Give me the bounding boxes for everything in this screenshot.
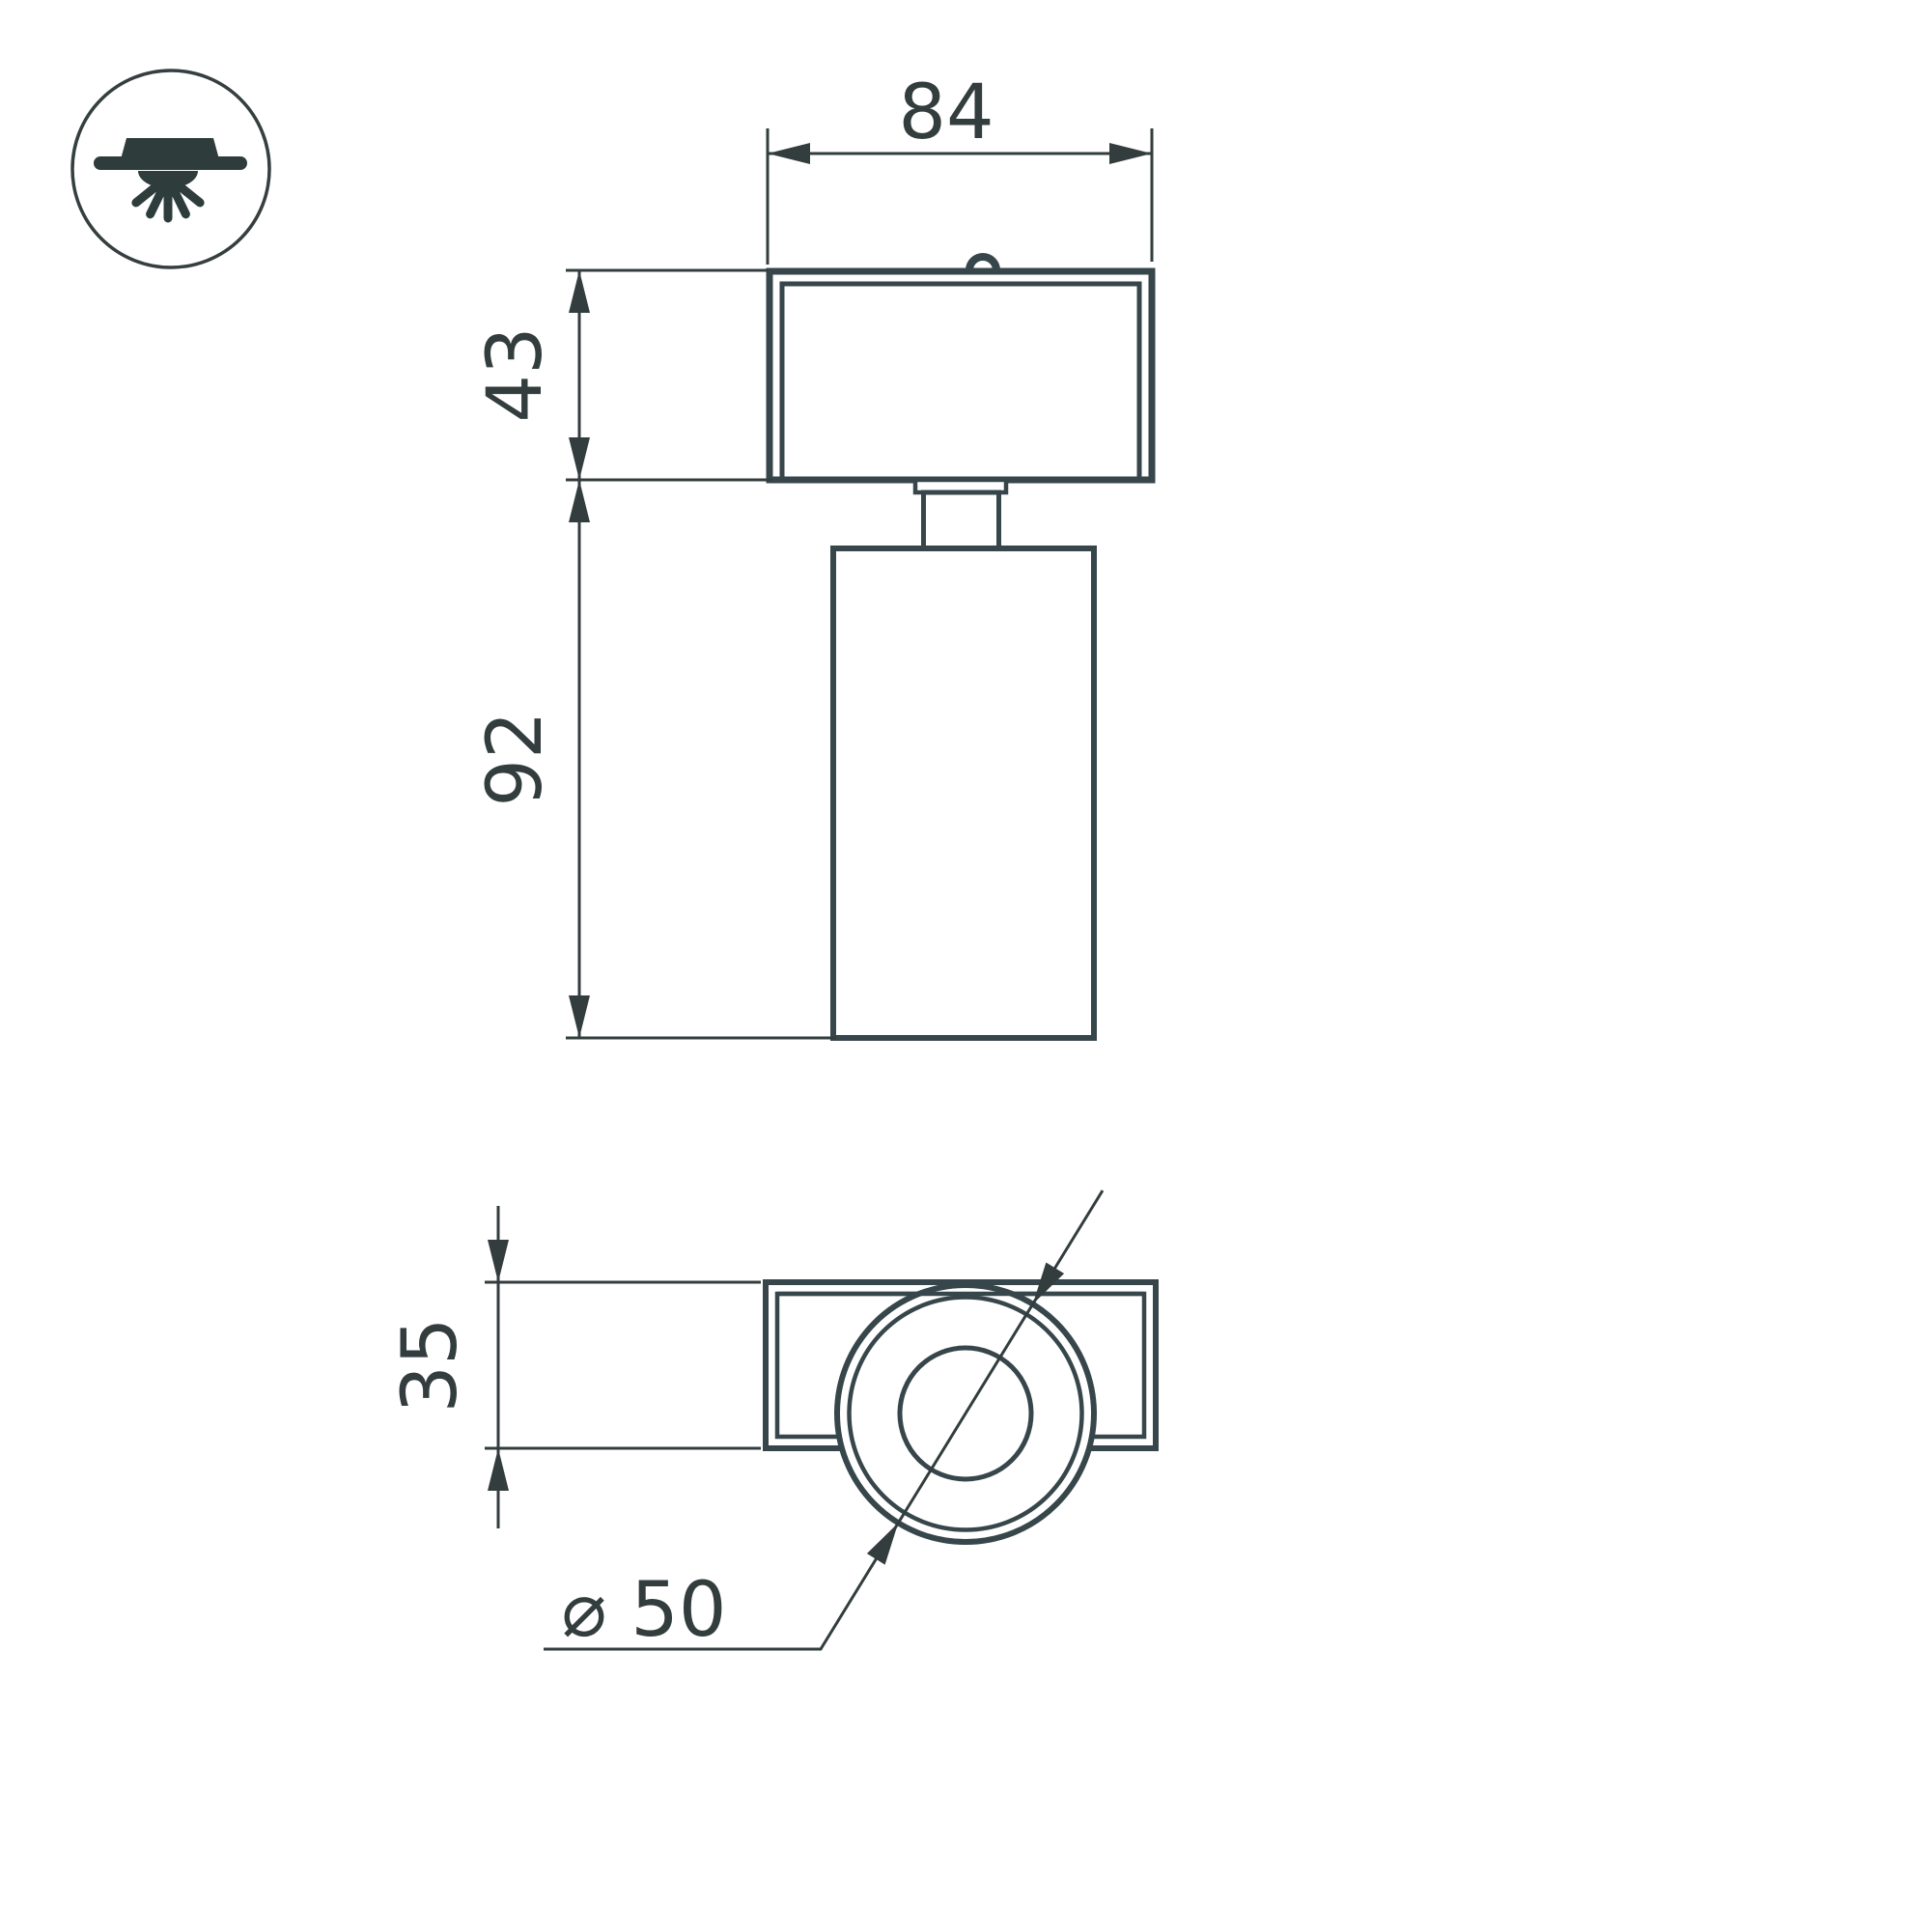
front-head-outer-box — [770, 271, 1152, 480]
icon-lamp-dome — [138, 171, 198, 188]
icon-light-rays — [136, 184, 200, 218]
dim-35-arrow-up — [488, 1448, 509, 1491]
icon-canopy-trapezoid — [121, 138, 219, 159]
surface-mount-icon — [72, 70, 269, 267]
dim-84-arrow-right — [1109, 143, 1152, 164]
dim-50-arrow-lower — [867, 1523, 898, 1564]
dim-92-label: 92 — [472, 711, 559, 806]
front-cylinder-body — [833, 548, 1094, 1038]
dim-35-arrow-down — [488, 1240, 509, 1282]
dim-43-arrow-up — [569, 270, 590, 313]
front-swivel-stem — [924, 492, 999, 548]
dim-43-label: 43 — [472, 326, 559, 422]
bottom-view — [766, 1282, 1156, 1542]
dim-diameter-label: ⌀ 50 — [561, 1567, 726, 1654]
front-view — [770, 257, 1152, 1038]
dim-35-label: 35 — [387, 1317, 474, 1413]
dim-92-arrow-up — [569, 480, 590, 522]
dim-84-arrow-left — [768, 143, 810, 164]
dim-92-arrow-down — [569, 995, 590, 1038]
dim-84-label: 84 — [898, 70, 994, 156]
icon-ceiling-bar — [94, 156, 247, 170]
dim-43-arrow-down — [569, 437, 590, 480]
luminaire-dimension-drawing: 84 43 92 35 ⌀ 50 — [0, 0, 1932, 1932]
technical-drawing-page: 84 43 92 35 ⌀ 50 — [0, 0, 1932, 1932]
